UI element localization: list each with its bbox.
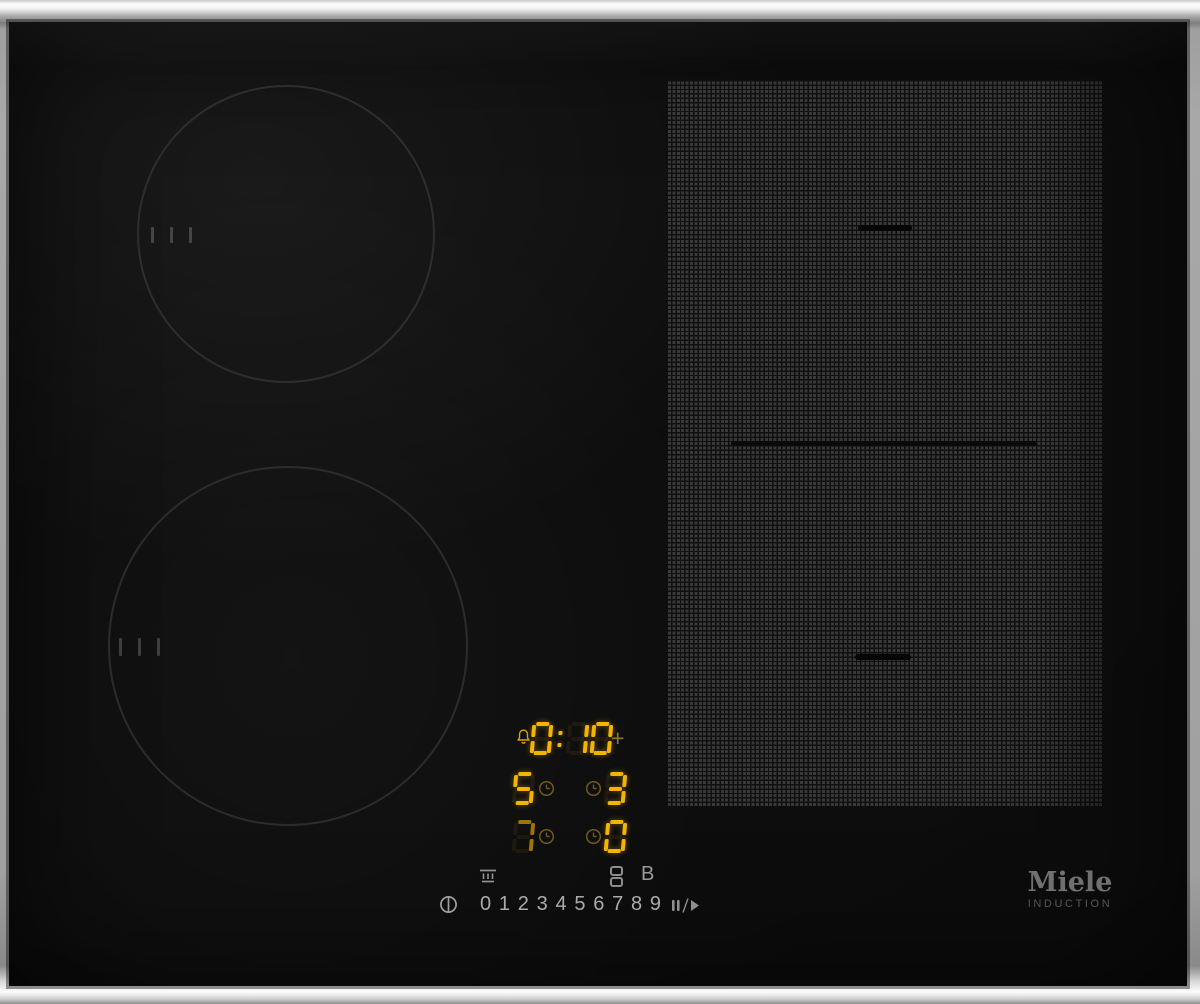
timer-display — [531, 722, 612, 755]
seven-segment-digit — [512, 820, 536, 853]
power-standby-icon[interactable] — [439, 895, 458, 914]
power-level-8[interactable]: 8 — [631, 893, 642, 916]
power-level-slider[interactable]: 0123456789 — [480, 893, 661, 916]
power-level-7[interactable]: 7 — [612, 893, 623, 916]
zone-power-display — [605, 820, 626, 853]
power-level-0[interactable]: 0 — [480, 893, 491, 916]
seven-segment-digit — [604, 820, 628, 853]
pot-position-dash — [858, 225, 912, 231]
zone-power-display — [513, 772, 534, 805]
zone-marker-ticks — [119, 638, 160, 656]
miele-logo: Miele — [1018, 869, 1122, 896]
seven-segment-digit — [590, 722, 614, 755]
zone-marker-ticks — [151, 227, 192, 243]
timer-bell-icon — [515, 728, 532, 746]
power-level-5[interactable]: 5 — [574, 893, 585, 916]
zone-timer-clock-icon — [538, 828, 555, 845]
power-level-3[interactable]: 3 — [537, 893, 548, 916]
stop-and-go-icon[interactable] — [671, 897, 701, 914]
zone-timer-clock-icon — [585, 828, 602, 845]
power-level-4[interactable]: 4 — [556, 893, 567, 916]
zone-timer-clock-icon — [538, 780, 555, 797]
power-level-2[interactable]: 2 — [518, 893, 529, 916]
zone-power-display — [513, 820, 534, 853]
seven-segment-digit — [604, 772, 628, 805]
timer-plus-button[interactable]: + — [611, 725, 624, 752]
power-level-9[interactable]: 9 — [650, 893, 661, 916]
zone-power-display — [605, 772, 626, 805]
induction-label: INDUCTION — [1018, 899, 1122, 910]
seven-segment-digit — [512, 772, 536, 805]
seven-segment-digit — [566, 722, 590, 755]
keep-warm-icon[interactable] — [477, 866, 499, 886]
display-colon — [554, 722, 566, 755]
power-level-6[interactable]: 6 — [593, 893, 604, 916]
seven-segment-digit — [530, 722, 554, 755]
cooking-zone-bottom-left — [108, 466, 468, 826]
power-level-1[interactable]: 1 — [499, 893, 510, 916]
pot-position-dash — [855, 654, 911, 660]
cooktop-frame: + B — [0, 0, 1200, 1004]
zone-divider-dash — [731, 441, 1037, 446]
booster-button[interactable]: B — [641, 863, 654, 886]
brand-logo: Miele INDUCTION — [1018, 869, 1122, 910]
zone-timer-clock-icon — [585, 780, 602, 797]
bridge-zones-icon[interactable] — [610, 866, 623, 888]
